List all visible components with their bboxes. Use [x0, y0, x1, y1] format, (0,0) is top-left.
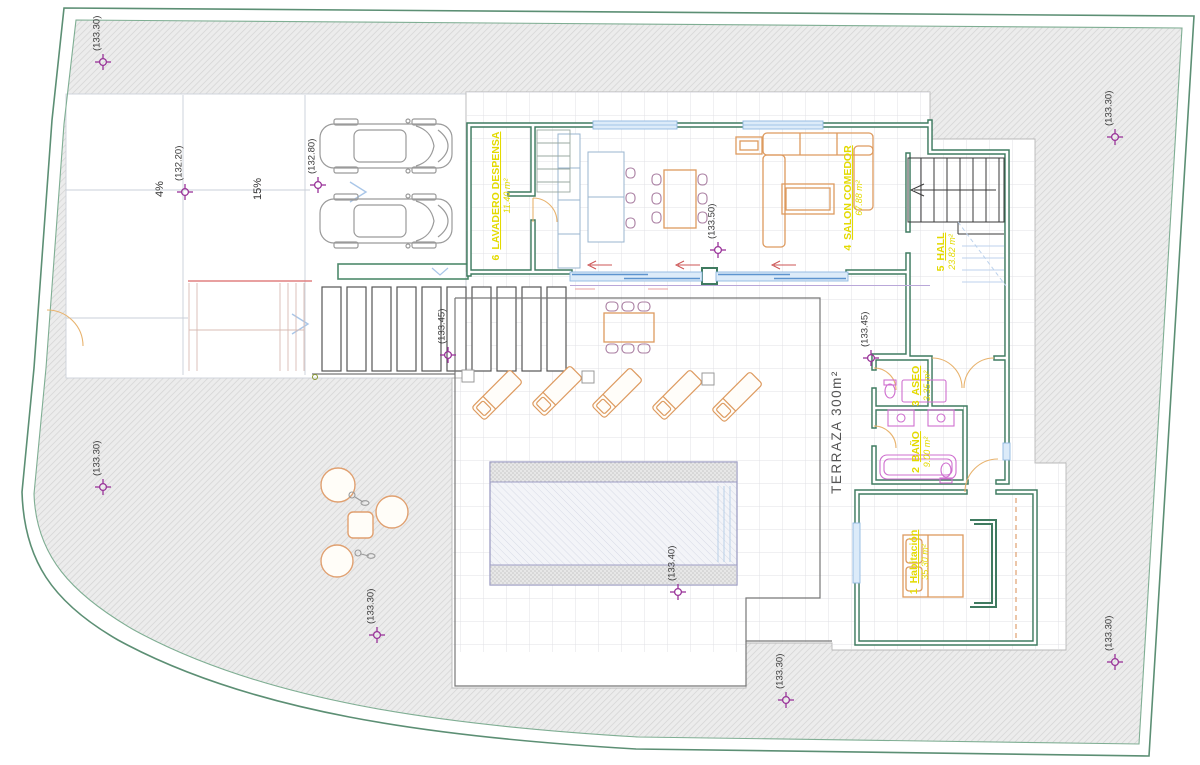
svg-text:(133.30): (133.30)	[366, 589, 377, 624]
slope-label-4: 4%	[154, 181, 166, 197]
svg-text:(132.20): (132.20)	[174, 146, 185, 181]
svg-text:(133.30): (133.30)	[92, 16, 103, 51]
svg-text:67.88 m²: 67.88 m²	[854, 179, 864, 216]
pool	[490, 462, 737, 585]
svg-text:(133.30): (133.30)	[775, 654, 786, 689]
floor-plan-page: 6LAVADERO DESPENSA 11.40 m² 4SALON COMED…	[0, 0, 1200, 765]
svg-text:23.82 m²: 23.82 m²	[947, 233, 957, 271]
svg-text:(133.30): (133.30)	[92, 441, 103, 476]
svg-text:6LAVADERO DESPENSA: 6LAVADERO DESPENSA	[490, 131, 502, 260]
terrace-label: TERRAZA 300m²	[829, 370, 844, 494]
svg-text:35.30 m²: 35.30 m²	[920, 543, 930, 580]
slope-label-15: 15%	[252, 178, 264, 200]
column-post	[702, 268, 717, 284]
svg-text:(132.80): (132.80)	[307, 139, 318, 174]
floor-plan-canvas: 6LAVADERO DESPENSA 11.40 m² 4SALON COMED…	[0, 0, 1200, 765]
svg-text:(133.45): (133.45)	[437, 309, 448, 344]
svg-text:11.40 m²: 11.40 m²	[502, 178, 512, 214]
svg-text:(133.40): (133.40)	[667, 546, 678, 581]
svg-text:(133.50): (133.50)	[707, 204, 718, 239]
svg-text:3.35 m²: 3.35 m²	[922, 370, 932, 402]
svg-text:(133.45): (133.45)	[860, 312, 871, 347]
svg-text:(133.30): (133.30)	[1104, 616, 1115, 651]
svg-text:(133.30): (133.30)	[1104, 91, 1115, 126]
svg-text:4SALON COMEDOR: 4SALON COMEDOR	[842, 145, 854, 251]
svg-text:9.00 m²: 9.00 m²	[922, 436, 932, 468]
